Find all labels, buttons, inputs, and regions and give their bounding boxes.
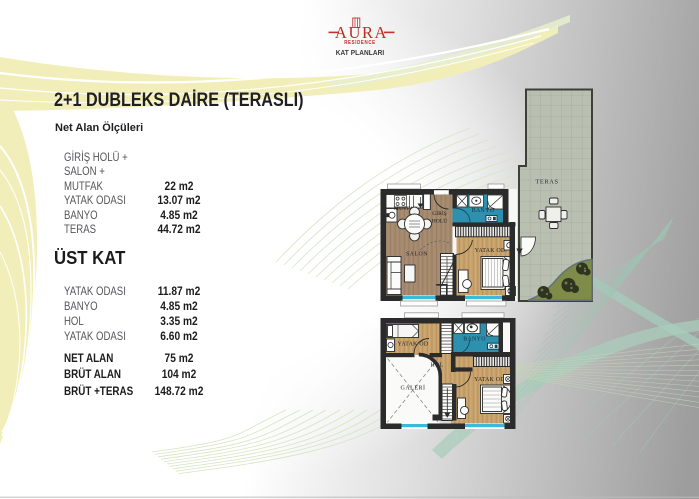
svg-text:HOLÜ: HOLÜ <box>432 218 448 225</box>
svg-text:BANYO: BANYO <box>472 208 495 214</box>
svg-text:SALON: SALON <box>406 252 428 258</box>
svg-text:BANYO: BANYO <box>463 337 486 343</box>
svg-text:GALERİ: GALERİ <box>401 385 426 392</box>
svg-text:YATAK OD: YATAK OD <box>398 342 429 348</box>
svg-text:TERAS: TERAS <box>535 179 558 186</box>
svg-text:YATAK OD: YATAK OD <box>474 377 505 383</box>
svg-text:YATAK OD.: YATAK OD. <box>475 248 508 254</box>
svg-text:GİRİŞ: GİRİŞ <box>432 210 447 217</box>
svg-text:HOL: HOL <box>430 363 443 369</box>
